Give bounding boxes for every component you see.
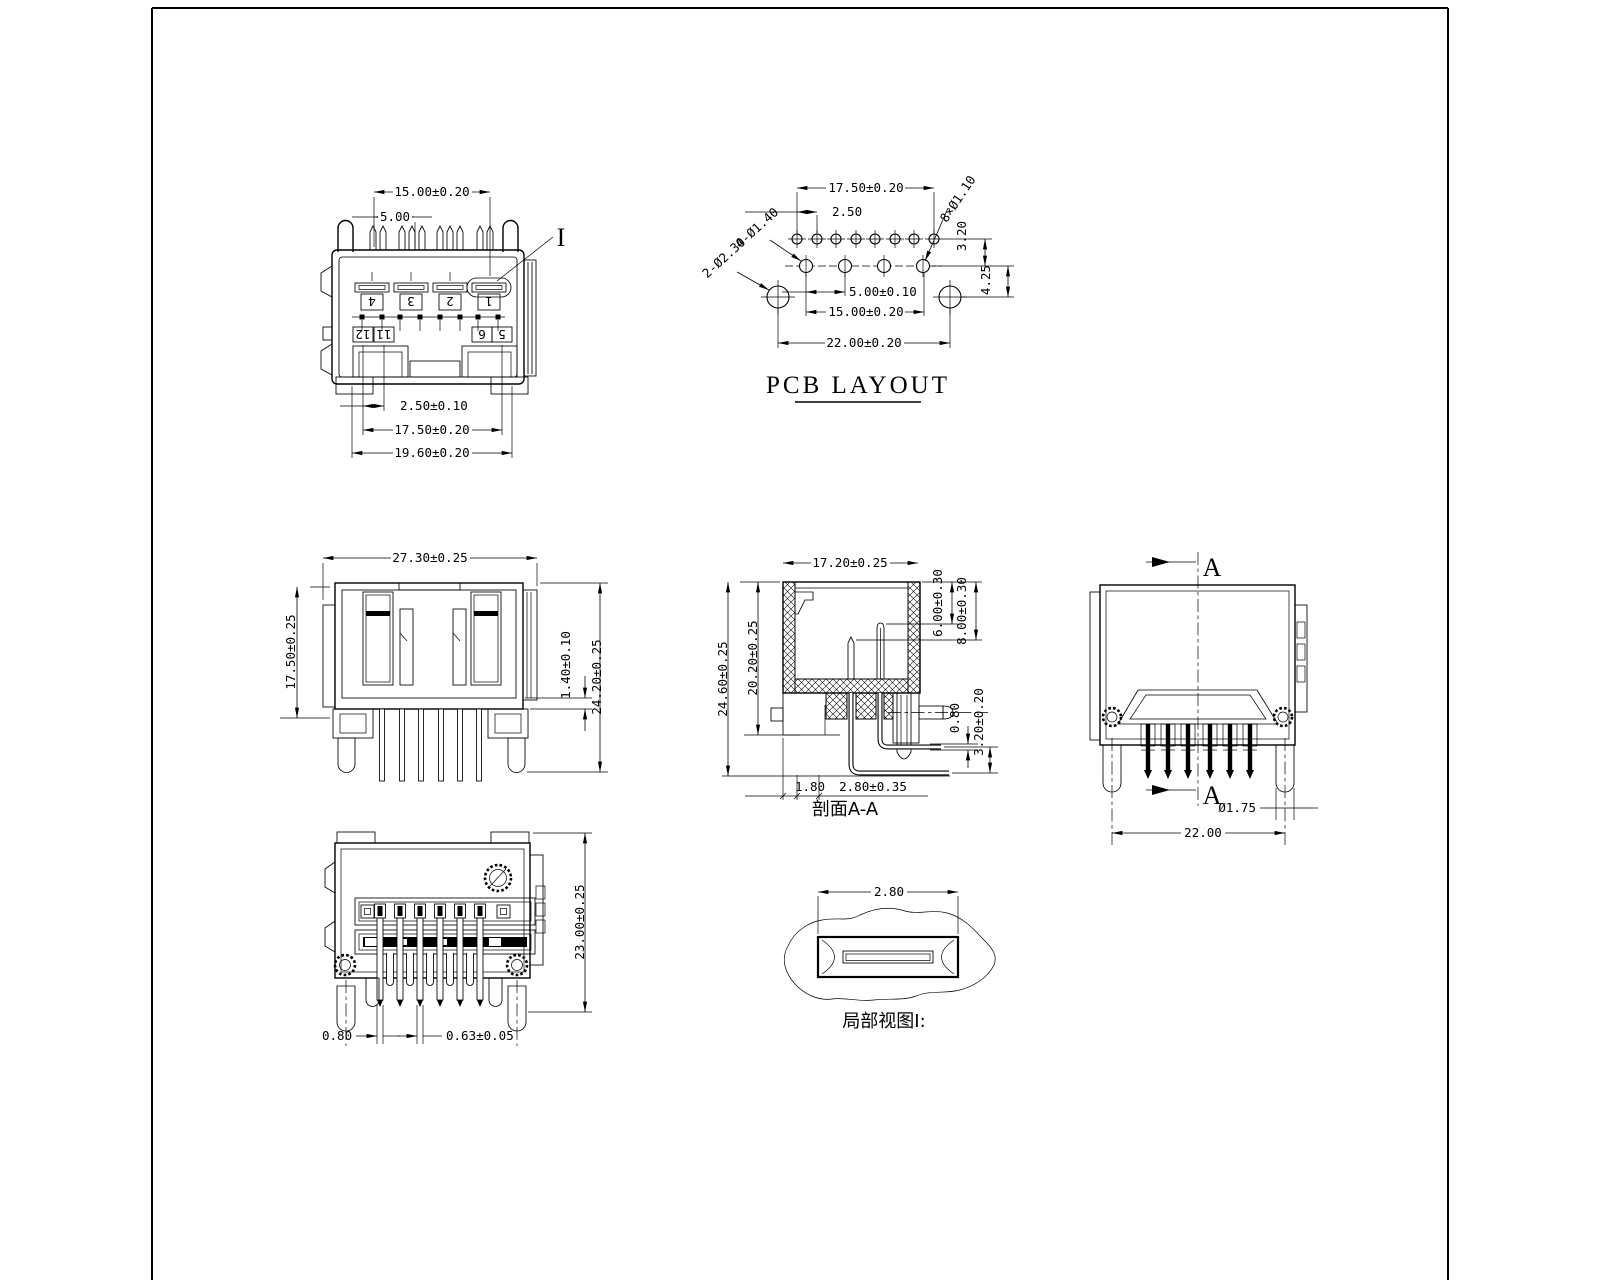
pin-label-2: 2 [446,294,454,309]
pin-label-5: 5 [498,327,506,342]
drawing-sheet: 4 3 2 1 12 11 6 5 [0,0,1600,1280]
dim-front-width: 27.30±0.25 [392,550,467,565]
pin-label-1: 1 [485,294,493,309]
top-view-dimensions: 15.00±0.20 5.00 I 2.50±0.10 17.50±0.20 1… [340,184,565,460]
pin-label-3: 3 [407,294,415,309]
front-legs [333,709,528,781]
pin-label-4: 4 [368,294,376,309]
pin-label-12: 12 [355,327,370,342]
detail-ref-label: I [557,223,566,252]
dim-mid-span: 15.00±0.20 [828,304,903,319]
cut-arrow-bottom: A [1146,781,1222,810]
detail-boundary [784,908,995,1000]
dim-top-span: 17.50±0.20 [828,180,903,195]
dim-rear-height: 23.00±0.25 [572,884,587,959]
pin-label-6: 6 [478,327,486,342]
hole-note-small: 8×Ø1.10 [937,173,979,225]
dim-section-height-body: 20.20±0.25 [745,620,760,695]
rear-body [325,832,545,978]
pcb-dimensions: 17.50±0.20 2.50 8×Ø1.10 3.20 4.25 4-Ø1.4… [699,173,1014,350]
sheet-border [152,8,1448,1280]
dim-bottom-pitch: 2.50±0.10 [400,398,468,413]
dim-peg-span: 22.00 [1184,825,1222,840]
view-pcb-layout: 17.50±0.20 2.50 8×Ø1.10 3.20 4.25 4-Ø1.4… [699,173,1014,402]
top-view-contacts [355,272,511,297]
dim-pin-span: 15.00±0.20 [394,184,469,199]
side-pins [1141,724,1257,779]
view-rear: 23.00±0.25 0.80 0.63±0.05 [322,832,592,1046]
section-dimensions: 17.20±0.25 6.00±0.30 8.00±0.30 24.60±0.2… [715,555,998,800]
dim-step: 2.80±0.35 [839,779,907,794]
pcb-holes-small [788,230,943,248]
dim-top-pitch: 2.50 [832,204,862,219]
top-view-bottom-features [336,346,528,394]
dim-section-width: 17.20±0.25 [812,555,887,570]
dim-bottom-overall: 19.60±0.20 [394,445,469,460]
dim-mid-pitch: 5.00±0.10 [849,284,917,299]
dim-big-offset: 4.25 [978,265,993,295]
dim-wall: 1.80 [795,779,825,794]
dim-wire-dia: 0.80 [947,703,962,733]
view-front: 27.30±0.25 17.50±0.25 1.40±0.10 24.20±0.… [280,550,608,781]
rear-knurl-wheel [485,865,511,891]
dim-pin-short: 6.00±0.30 [930,569,945,637]
dim-wire-gap: 3.20±0.20 [971,688,986,756]
rear-pins [377,918,483,1007]
cut-arrow-top: A [1146,553,1222,582]
dim-peg-dia: Ø1.75 [1218,800,1256,815]
front-body [323,583,537,709]
dim-pin-pitch: 5.00 [380,209,410,224]
dim-rear-pin-b: 0.63±0.05 [446,1028,514,1043]
detail-slot [818,937,958,977]
pcb-holes [761,230,967,314]
detail-caption: 局部视图I: [842,1011,925,1032]
dim-pin-long: 8.00±0.30 [954,577,969,645]
dim-detail-slot: 2.80 [874,884,904,899]
connector-drawing: 4 3 2 1 12 11 6 5 [0,0,1600,1280]
dim-section-height-overall: 24.60±0.25 [715,641,730,716]
view-top: 4 3 2 1 12 11 6 5 [321,184,565,460]
dim-big-span: 22.00±0.20 [826,335,901,350]
dim-row-gap: 3.20 [954,221,969,251]
dim-bottom-span: 17.50±0.20 [394,422,469,437]
dim-front-height-body: 17.50±0.25 [283,614,298,689]
dim-front-height-overall: 24.20±0.25 [589,639,604,714]
top-view-pin-numbers: 4 3 2 1 12 11 6 5 [352,294,512,342]
view-section: 17.20±0.25 6.00±0.30 8.00±0.30 24.60±0.2… [715,555,998,820]
dim-front-lip: 1.40±0.10 [558,631,573,699]
detail-dimensions: 2.80 [818,884,958,934]
pin-label-11: 11 [376,327,391,342]
section-caption: 剖面A-A [812,799,879,820]
dim-rear-pin-a: 0.80 [322,1028,352,1043]
pcb-layout-title: PCB LAYOUT [766,372,950,399]
detail-leader [497,237,553,281]
front-pins [380,709,482,781]
view-detail: 2.80 局部视图I: [784,884,995,1032]
side-body [1090,585,1307,792]
cut-label-top: A [1203,553,1222,582]
view-side: A A Ø1.75 [1090,552,1318,848]
